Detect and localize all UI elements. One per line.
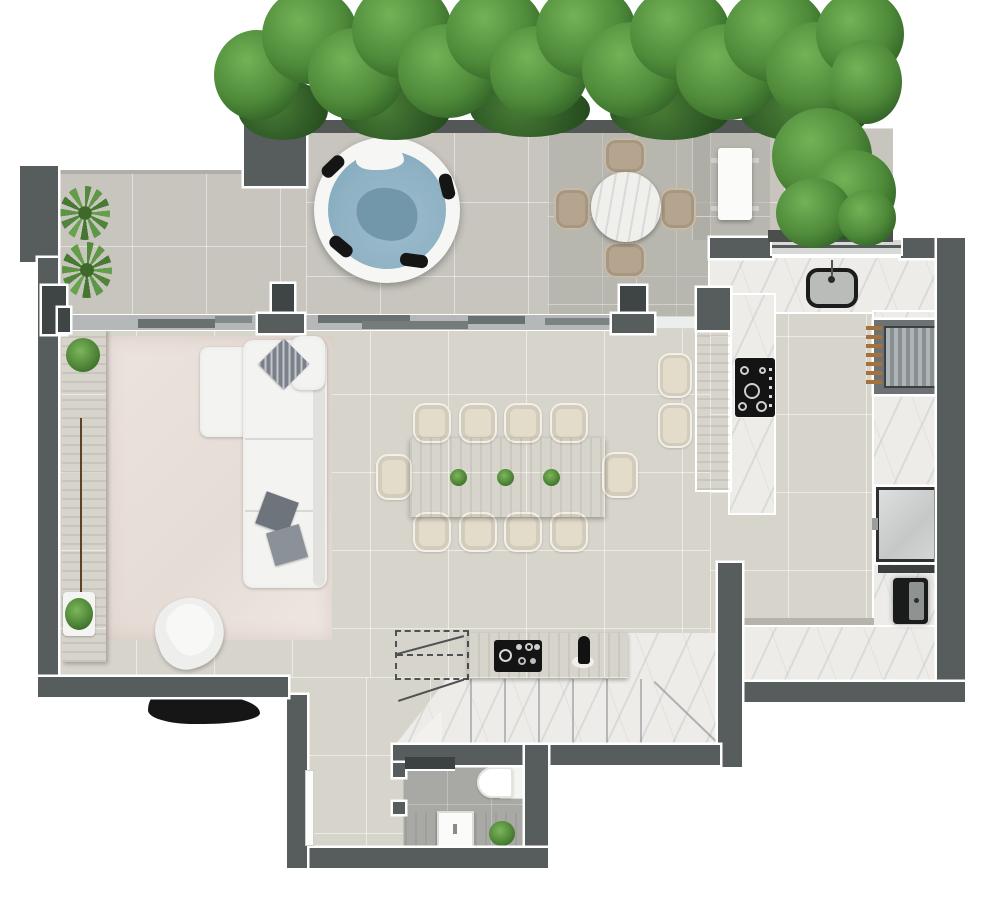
espresso-knob xyxy=(516,644,522,650)
stair-tread xyxy=(640,679,642,745)
espresso-knob xyxy=(499,649,512,662)
outdoor-round-table xyxy=(591,172,661,242)
bar-counter xyxy=(468,633,628,678)
espresso-knob xyxy=(530,658,536,664)
table-plant-1 xyxy=(450,469,467,486)
sliding-door-panel xyxy=(545,318,615,325)
wall-island-pillar xyxy=(697,288,730,330)
wall-mid-pillar-v xyxy=(620,286,646,316)
grill-skewer-handles xyxy=(866,326,882,388)
sliding-door-panel xyxy=(468,316,525,324)
outdoor-chair-top xyxy=(604,138,646,174)
island-wood-front xyxy=(697,328,730,490)
dining-chair-end-left xyxy=(376,454,412,500)
dining-chair xyxy=(550,512,588,552)
terrace-fern-2 xyxy=(62,242,112,298)
sofa-cushion-line1 xyxy=(245,438,313,440)
dining-chair xyxy=(504,512,542,552)
outdoor-chair-right xyxy=(660,188,696,230)
kitchen-counter-bottom xyxy=(742,627,937,680)
wine-cooler-handle xyxy=(914,598,919,603)
wall-kitchen-top-left xyxy=(710,238,772,258)
wall-bath-left-stub1 xyxy=(393,763,405,777)
island-stool-1 xyxy=(658,353,692,398)
entry-shadow xyxy=(148,694,260,724)
cooktop-burner xyxy=(740,366,749,375)
wall-left-pillar-stub xyxy=(58,308,70,332)
dining-chair xyxy=(550,403,588,443)
outdoor-chair-bottom xyxy=(604,242,646,278)
dining-chair-end-right xyxy=(602,452,638,498)
wall-bath-left-stub2 xyxy=(393,802,405,814)
bath-door-leaf xyxy=(305,770,314,846)
stair-tread xyxy=(504,679,506,745)
sliding-door-open-glass xyxy=(648,316,698,329)
dining-chair xyxy=(413,403,451,443)
espresso-knob xyxy=(525,643,533,651)
cooktop-knobs xyxy=(769,368,772,408)
refrigerator-hinge xyxy=(872,518,878,530)
cooktop-burner xyxy=(756,401,767,412)
espresso-knob xyxy=(534,644,540,650)
dining-chair xyxy=(413,512,451,552)
bath-shelf xyxy=(405,757,455,769)
kitchen-window-glass-line xyxy=(772,245,901,248)
island-stool-2 xyxy=(658,403,692,448)
wall-cross-pillar-base xyxy=(258,314,304,333)
bottle xyxy=(578,636,590,664)
table-plant-2 xyxy=(497,469,514,486)
stair-tread xyxy=(538,679,540,745)
dining-chair xyxy=(459,512,497,552)
wall-kitchen-divider xyxy=(718,563,742,767)
wall-kitchen-bottom xyxy=(718,682,965,702)
refrigerator xyxy=(876,487,937,562)
outdoor-chair-left xyxy=(554,188,590,230)
grill-grate xyxy=(884,326,942,388)
wall-cross-pillar-v xyxy=(272,284,294,316)
sideboard-plant-bottom xyxy=(65,598,93,630)
stair-tread xyxy=(470,679,472,745)
sideboard-plant-top xyxy=(66,338,100,372)
sink-faucet xyxy=(828,276,835,283)
cooktop-burner xyxy=(744,383,760,399)
toilet-bowl xyxy=(477,767,513,798)
wall-living-bottom xyxy=(38,677,288,697)
wall-right-outer xyxy=(937,238,965,702)
stair-dashed-mid xyxy=(397,654,463,656)
cooktop-burner xyxy=(759,367,766,374)
dining-chair xyxy=(459,403,497,443)
sliding-door-panel xyxy=(138,319,215,328)
table-plant-3 xyxy=(543,469,560,486)
bath-sink-faucet xyxy=(453,824,457,834)
stair-tread xyxy=(606,679,608,745)
dining-chair xyxy=(504,403,542,443)
stair-tread xyxy=(572,679,574,745)
floor-plan-canvas xyxy=(0,0,1000,899)
cooktop-burner xyxy=(738,402,747,411)
wall-hall-left xyxy=(287,695,307,868)
bath-plant xyxy=(489,821,515,846)
sink-faucet-stem xyxy=(831,260,833,276)
wall-bath-bottom xyxy=(287,848,548,868)
espresso-knob xyxy=(518,657,526,665)
sliding-door-panel xyxy=(215,316,252,323)
appliance-divider xyxy=(878,565,935,573)
white-bench xyxy=(718,148,752,220)
terrace-fern-1 xyxy=(60,186,110,240)
hot-tub-water-edge xyxy=(356,144,404,170)
sliding-door-panel xyxy=(362,321,468,329)
wall-left-top xyxy=(20,166,58,262)
wall-mid-pillar-base xyxy=(612,314,654,333)
